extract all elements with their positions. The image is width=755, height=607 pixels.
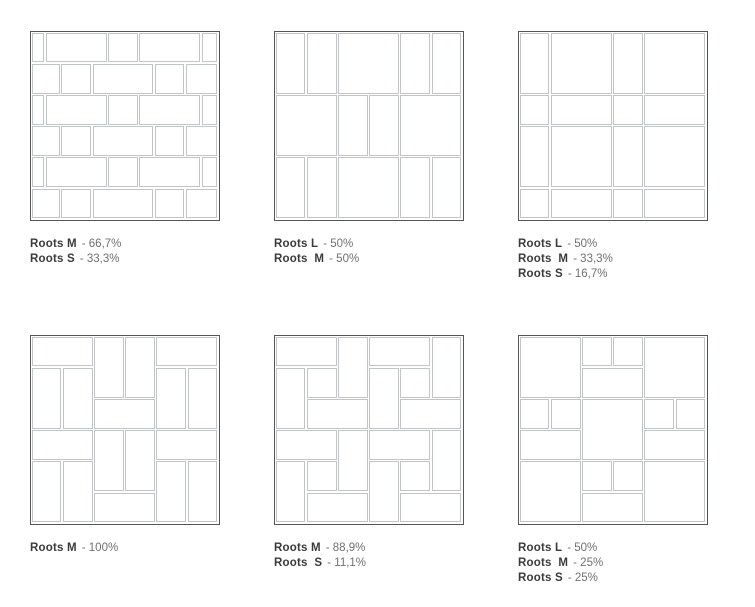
pattern-label-line: Roots L- 50% (518, 237, 708, 252)
tile-m (582, 368, 643, 398)
tile-m (125, 430, 155, 491)
pattern-percentage: - 25% (568, 557, 603, 569)
tile-m (94, 430, 124, 491)
tile-m (307, 493, 368, 523)
tile-s (644, 399, 674, 429)
tile-m (307, 33, 337, 94)
tile-s (520, 95, 550, 125)
tile-s (400, 461, 430, 491)
tile-m (400, 33, 430, 94)
tile-m (432, 430, 462, 491)
tile-m (276, 33, 306, 94)
tile-m (276, 430, 337, 460)
tile-s (551, 399, 581, 429)
tile-m (276, 337, 337, 367)
pattern-panel-4: Roots M- 100% (30, 335, 220, 586)
tile-m (432, 337, 462, 398)
pattern-label-line: Roots M- 50% (274, 252, 464, 267)
tile-m (32, 368, 62, 429)
tile-m (125, 337, 155, 398)
tile-cut (32, 64, 60, 94)
tile-m (46, 157, 107, 187)
pattern-name: Roots L (518, 238, 562, 250)
tile-m (369, 337, 430, 367)
pattern-name: Roots M (274, 253, 324, 265)
tile-cut (32, 157, 44, 187)
tile-cut (32, 95, 44, 125)
pattern-panel-6: Roots L- 50%Roots M- 25%Roots S- 25% (518, 335, 708, 586)
tile-s (613, 95, 643, 125)
tile-s (61, 64, 91, 94)
page: Roots M- 66,7%Roots S- 33,3% Roots L- 50… (0, 0, 755, 607)
tile-s (613, 337, 643, 367)
tile-m (32, 461, 62, 522)
tile-s (307, 461, 337, 491)
tile-m (93, 189, 154, 219)
pattern-name: Roots M (274, 542, 321, 554)
pattern-panel-1: Roots M- 66,7%Roots S- 33,3% (30, 31, 220, 282)
pattern-percentage: - 100% (77, 542, 118, 554)
tile-s (676, 399, 706, 429)
tile-l (400, 95, 461, 156)
tile-m (432, 33, 462, 94)
pattern-box (518, 31, 708, 221)
pattern-box (30, 31, 220, 221)
tile-m (369, 461, 399, 522)
tile-m (338, 337, 368, 398)
pattern-label-line: Roots S- 11,1% (274, 556, 464, 571)
tile-l (644, 126, 705, 187)
pattern-name: Roots S (274, 557, 322, 569)
tile-m (93, 126, 154, 156)
patterns-grid: Roots M- 66,7%Roots S- 33,3% Roots L- 50… (30, 31, 708, 586)
tile-s (61, 189, 91, 219)
tile-m (139, 95, 200, 125)
tile-m (188, 461, 218, 522)
tile-m (369, 430, 430, 460)
pattern-percentage: - 11,1% (322, 557, 366, 569)
tile-m (188, 368, 218, 429)
tile-m (613, 126, 643, 187)
pattern-name: Roots M (30, 542, 77, 554)
tile-m (551, 95, 612, 125)
tile-m (307, 157, 337, 218)
tile-m (46, 33, 107, 63)
tile-m (32, 430, 93, 460)
tile-cut (186, 64, 217, 94)
tile-m (432, 157, 462, 218)
tile-m (139, 33, 200, 63)
tile-m (63, 461, 93, 522)
pattern-name: Roots M (30, 238, 77, 250)
pattern-labels: Roots M- 66,7%Roots S- 33,3% (30, 237, 220, 267)
tile-m (644, 95, 705, 125)
tile-m (63, 368, 93, 429)
tile-s (582, 337, 612, 367)
pattern-labels: Roots M- 88,9%Roots S- 11,1% (274, 541, 464, 571)
tile-s (613, 461, 643, 491)
tile-cut (186, 126, 217, 156)
pattern-percentage: - 50% (318, 238, 353, 250)
tile-l (551, 126, 612, 187)
tile-m (520, 126, 550, 187)
tile-m (582, 493, 643, 523)
pattern-labels: Roots L- 50%Roots M- 25%Roots S- 25% (518, 541, 708, 586)
pattern-panel-3: Roots L- 50%Roots M- 33,3%Roots S- 16,7% (518, 31, 708, 282)
tile-m (156, 461, 186, 522)
tile-s (582, 461, 612, 491)
tile-m (94, 493, 155, 523)
pattern-label-line: Roots L- 50% (518, 541, 708, 556)
tile-m (94, 337, 124, 398)
tile-s (155, 126, 185, 156)
tile-s (155, 64, 185, 94)
tile-s (108, 157, 138, 187)
tile-m (400, 399, 461, 429)
tile-s (108, 33, 138, 63)
pattern-label-line: Roots M- 100% (30, 541, 220, 556)
tile-m (520, 430, 581, 460)
tile-m (644, 189, 705, 219)
pattern-name: Roots M (518, 253, 568, 265)
tile-s (400, 368, 430, 398)
pattern-box (274, 31, 464, 221)
tile-l (276, 95, 337, 156)
pattern-label-line: Roots M- 25% (518, 556, 708, 571)
pattern-labels: Roots L- 50%Roots M- 50% (274, 237, 464, 267)
tile-cut (186, 189, 217, 219)
pattern-percentage: - 33,3% (568, 253, 613, 265)
pattern-percentage: - 50% (562, 238, 597, 250)
tile-l (644, 337, 705, 398)
tile-m (276, 461, 306, 522)
tile-m (32, 337, 93, 367)
pattern-panel-5: Roots M- 88,9%Roots S- 11,1% (274, 335, 464, 586)
pattern-label-line: Roots S- 25% (518, 571, 708, 586)
tile-m (156, 368, 186, 429)
tile-m (46, 95, 107, 125)
pattern-box (518, 335, 708, 525)
pattern-name: Roots S (518, 268, 563, 280)
pattern-percentage: - 50% (324, 253, 359, 265)
tile-cut (32, 189, 60, 219)
tile-m (139, 157, 200, 187)
tile-cut (32, 33, 44, 63)
tile-m (276, 368, 306, 429)
pattern-name: Roots L (274, 238, 318, 250)
pattern-name: Roots M (518, 557, 568, 569)
pattern-percentage: - 88,9% (321, 542, 366, 554)
tile-m (613, 33, 643, 94)
tile-l (520, 461, 581, 522)
pattern-percentage: - 50% (562, 542, 597, 554)
tile-m (94, 399, 155, 429)
tile-s (155, 189, 185, 219)
tile-cut (202, 157, 218, 187)
pattern-panel-2: Roots L- 50%Roots M- 50% (274, 31, 464, 282)
tile-s (520, 399, 550, 429)
tile-cut (32, 126, 60, 156)
tile-l (338, 157, 399, 218)
pattern-box (274, 335, 464, 525)
tile-m (369, 95, 399, 156)
tile-s (520, 189, 550, 219)
pattern-labels: Roots L- 50%Roots M- 33,3%Roots S- 16,7% (518, 237, 708, 282)
tile-l (551, 33, 612, 94)
tile-l (520, 337, 581, 398)
tile-m (520, 33, 550, 94)
pattern-label-line: Roots M- 66,7% (30, 237, 220, 252)
tile-s (613, 189, 643, 219)
tile-cut (202, 33, 218, 63)
pattern-label-line: Roots S- 33,3% (30, 252, 220, 267)
tile-m (400, 493, 461, 523)
tile-cut (202, 95, 218, 125)
pattern-labels: Roots M- 100% (30, 541, 220, 556)
tile-m (338, 95, 368, 156)
pattern-name: Roots S (518, 572, 563, 584)
tile-m (551, 189, 612, 219)
pattern-percentage: - 25% (563, 572, 598, 584)
tile-l (582, 399, 643, 460)
pattern-name: Roots L (518, 542, 562, 554)
pattern-percentage: - 33,3% (75, 253, 120, 265)
pattern-label-line: Roots S- 16,7% (518, 267, 708, 282)
tile-s (307, 368, 337, 398)
pattern-box (30, 335, 220, 525)
tile-m (156, 430, 217, 460)
tile-m (93, 64, 154, 94)
tile-m (644, 430, 705, 460)
pattern-percentage: - 66,7% (77, 238, 122, 250)
tile-s (108, 95, 138, 125)
tile-m (338, 430, 368, 491)
tile-l (644, 33, 705, 94)
tile-m (307, 399, 368, 429)
tile-m (276, 157, 306, 218)
tile-m (369, 368, 399, 429)
tile-l (644, 461, 705, 522)
pattern-label-line: Roots M- 88,9% (274, 541, 464, 556)
tile-m (400, 157, 430, 218)
pattern-percentage: - 16,7% (563, 268, 608, 280)
pattern-name: Roots S (30, 253, 75, 265)
tile-m (156, 337, 217, 367)
tile-l (338, 33, 399, 94)
pattern-label-line: Roots M- 33,3% (518, 252, 708, 267)
tile-s (61, 126, 91, 156)
pattern-label-line: Roots L- 50% (274, 237, 464, 252)
